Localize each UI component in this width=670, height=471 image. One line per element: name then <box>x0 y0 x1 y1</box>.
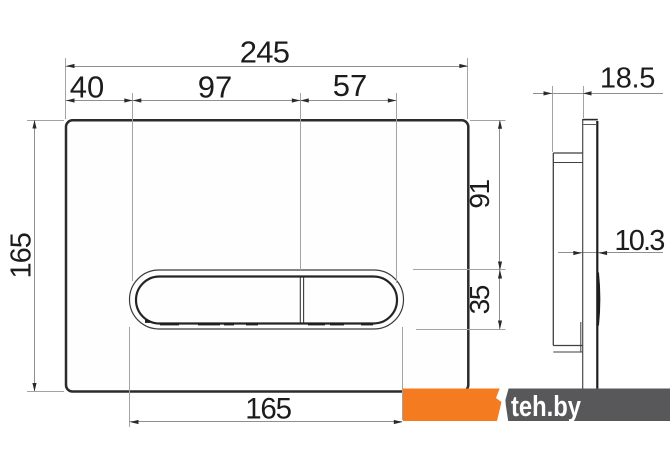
svg-text:245: 245 <box>240 35 290 70</box>
svg-text:91: 91 <box>464 180 495 209</box>
svg-text:57: 57 <box>333 68 367 103</box>
svg-text:165: 165 <box>245 393 291 426</box>
svg-text:40: 40 <box>70 70 104 105</box>
svg-text:35: 35 <box>464 285 495 314</box>
svg-text:teh.by: teh.by <box>511 391 581 423</box>
svg-text:10.3: 10.3 <box>614 225 664 257</box>
svg-text:97: 97 <box>198 70 232 105</box>
svg-text:18.5: 18.5 <box>600 62 655 94</box>
svg-text:165: 165 <box>6 233 38 278</box>
